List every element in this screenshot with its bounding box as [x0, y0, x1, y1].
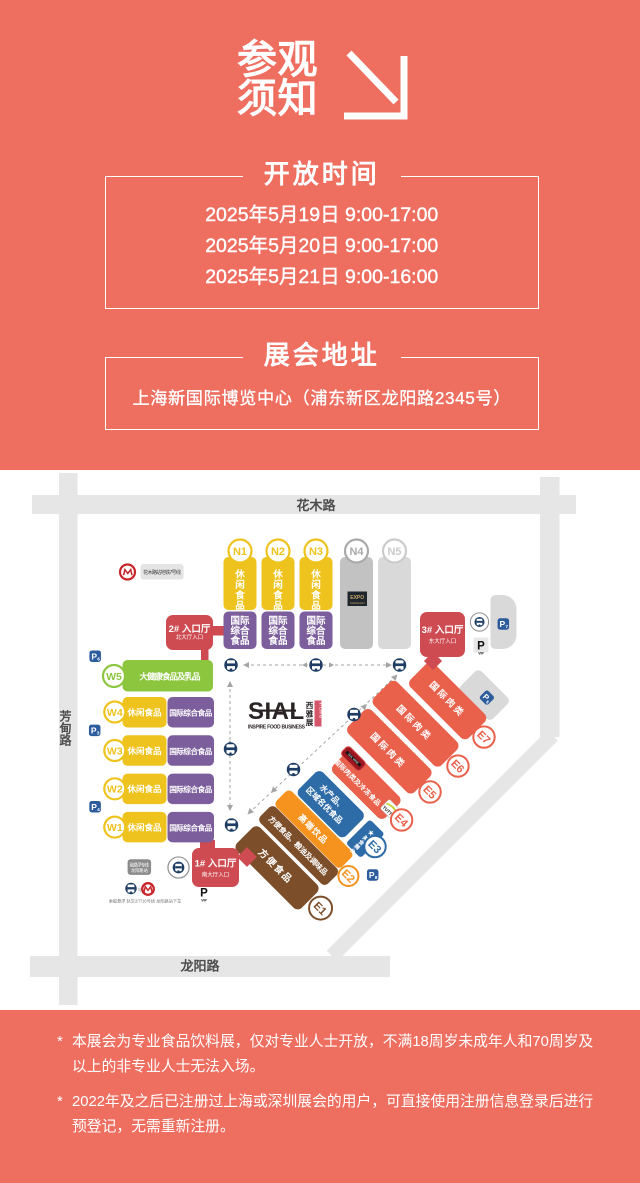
svg-text:W3: W3: [107, 745, 123, 757]
svg-text:品: 品: [235, 601, 245, 612]
svg-text:食品: 食品: [229, 635, 249, 647]
svg-text:乘磁悬浮 轨交2/7/16号线 龙阳路站下车: 乘磁悬浮 轨交2/7/16号线 龙阳路站下车: [109, 898, 182, 905]
svg-text:in China: in China: [319, 703, 324, 719]
svg-text:闲: 闲: [311, 579, 321, 591]
svg-text:VIP: VIP: [201, 899, 207, 903]
svg-text:路: 路: [59, 733, 72, 748]
svg-text:W5: W5: [106, 671, 122, 683]
svg-text:INSPIRE FOOD BUSINESS: INSPIRE FOOD BUSINESS: [248, 725, 306, 731]
svg-text:VIP: VIP: [478, 652, 484, 656]
svg-text:1# 入口厅: 1# 入口厅: [195, 859, 237, 870]
svg-text:花木路站地铁7号线: 花木路站地铁7号线: [143, 568, 181, 576]
svg-text:N5: N5: [387, 546, 401, 558]
svg-text:N1: N1: [233, 546, 247, 558]
svg-text:大健康食品及乳品: 大健康食品及乳品: [140, 672, 201, 682]
svg-text:休闲食品: 休闲食品: [127, 822, 162, 832]
svg-text:N2: N2: [271, 546, 285, 558]
svg-text:休闲食品: 休闲食品: [127, 746, 162, 756]
svg-text:东大厅入口: 东大厅入口: [429, 637, 457, 645]
svg-text:6: 6: [97, 656, 100, 662]
svg-text:食品: 食品: [305, 635, 325, 647]
svg-text:SHANGHAI: SHANGHAI: [350, 601, 365, 605]
svg-text:4: 4: [97, 807, 100, 813]
svg-text:国际综合食品: 国际综合食品: [169, 746, 213, 756]
svg-text:龙阳路站: 龙阳路站: [131, 867, 149, 874]
svg-text:3: 3: [97, 731, 100, 737]
svg-text:花木路: 花木路: [296, 498, 336, 513]
svg-text:休闲食品: 休闲食品: [127, 784, 162, 794]
svg-text:品: 品: [311, 601, 321, 612]
svg-text:南大厅入口: 南大厅入口: [202, 871, 230, 879]
svg-text:N4: N4: [349, 546, 364, 558]
svg-text:W4: W4: [107, 707, 123, 719]
svg-text:食: 食: [272, 590, 283, 602]
svg-text:龙阳路: 龙阳路: [180, 959, 220, 974]
svg-text:国际综合食品: 国际综合食品: [169, 708, 213, 718]
svg-text:闲: 闲: [235, 579, 245, 591]
svg-text:W1: W1: [107, 822, 123, 834]
svg-text:8: 8: [375, 875, 378, 881]
svg-text:食: 食: [234, 590, 245, 602]
svg-text:雅: 雅: [306, 709, 314, 719]
svg-text:N3: N3: [309, 546, 323, 558]
svg-text:W2: W2: [107, 784, 123, 796]
svg-text:食品: 食品: [267, 635, 287, 647]
svg-text:休: 休: [310, 569, 321, 581]
svg-text:7: 7: [505, 624, 508, 630]
svg-text:休闲食品: 休闲食品: [127, 708, 162, 718]
svg-text:与: 与: [138, 886, 142, 892]
svg-text:食: 食: [310, 590, 321, 602]
svg-text:闲: 闲: [273, 579, 283, 591]
svg-text:2# 入口厅: 2# 入口厅: [169, 624, 211, 635]
svg-text:北大厅入口: 北大厅入口: [176, 633, 204, 641]
svg-text:国际综合食品: 国际综合食品: [169, 822, 213, 832]
svg-text:展: 展: [305, 718, 314, 727]
svg-text:品: 品: [273, 601, 283, 612]
svg-text:3# 入口厅: 3# 入口厅: [422, 625, 464, 636]
svg-text:休: 休: [272, 569, 283, 581]
svg-text:休: 休: [234, 569, 245, 581]
svg-text:国际综合食品: 国际综合食品: [169, 784, 213, 794]
